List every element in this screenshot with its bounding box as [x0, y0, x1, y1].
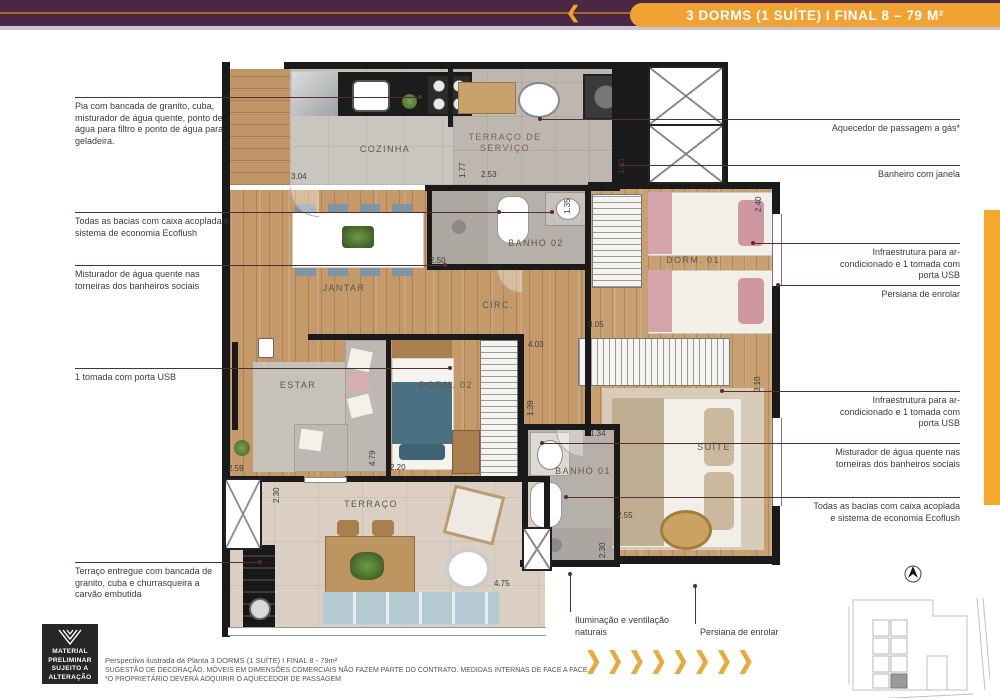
sliding-door [304, 477, 347, 483]
callout-dot [776, 283, 780, 287]
bbq-sink [249, 598, 271, 620]
dim-label: 2.20 [390, 463, 406, 472]
callout-line [75, 562, 260, 563]
dorm01-bed-runner [648, 192, 672, 254]
pagination-chevrons[interactable]: ❯❯❯❯❯❯❯❯ [585, 646, 759, 675]
sofa-pillow [299, 429, 324, 452]
room-label-dorm02: DORM. 02 [413, 380, 479, 391]
callout-line [75, 97, 420, 98]
duct-shaft [224, 478, 262, 550]
badge-line: SUJEITO A [48, 665, 91, 674]
dim-label: 2.53 [481, 170, 497, 179]
footer-disclaimer: SUGESTÃO DE DECORAÇÃO. MÓVEIS EM DIMENSÕ… [105, 666, 595, 675]
sofa-pillow [348, 373, 370, 394]
callout-line [75, 265, 445, 266]
wall [448, 69, 453, 127]
callout-ac-infra-top: Infraestrutura para ar-condicionado e 1 … [835, 247, 960, 282]
footer-disclaimer2: *O PROPRIETÁRIO DEVERÁ ADQUIRIR O AQUECE… [105, 675, 595, 684]
badge-line: PRELIMINAR [48, 657, 91, 666]
callout-bath-window: Banheiro com janela [760, 169, 960, 181]
dim-label: 2.40 [754, 196, 763, 212]
callout-mixer-right: Misturador de água quente nas torneiras … [810, 447, 960, 470]
callout-dot [497, 210, 501, 214]
room-label-terraco-servico: TERRAÇO DE SERVIÇO [465, 132, 545, 155]
callout-dot [418, 95, 422, 99]
callout-dot [568, 572, 572, 576]
callout-line [75, 212, 552, 213]
callout-sink-granite: Pia com bancada de granito, cuba, mistur… [75, 101, 225, 147]
wall [386, 338, 391, 482]
dorm01-wardrobe [592, 194, 642, 288]
callout-ecoflush-right: Todas as bacias com caixa acoplada e sis… [810, 501, 960, 524]
dim-label: 1.77 [458, 162, 467, 178]
callout-line [778, 285, 960, 286]
wall [585, 186, 591, 436]
callout-dot [564, 495, 568, 499]
dorm02-desk [452, 430, 480, 474]
room-label-circ: CIRC. [477, 300, 519, 311]
wall [614, 428, 620, 564]
dim-label: 4.79 [368, 450, 377, 466]
floorplan-page: ❮ 3 DORMS (1 SUÍTE) I FINAL 8 – 79 M² [0, 0, 1000, 700]
page-title: 3 DORMS (1 SUÍTE) I FINAL 8 – 79 M² [686, 8, 944, 23]
elevator-shaft [648, 124, 724, 184]
laundry-counter [458, 82, 516, 114]
footer-caption: Perspectiva ilustrada da Planta 3 DORMS … [105, 656, 585, 665]
callout-line [542, 443, 960, 444]
badge-line: ALTERAÇÃO [48, 674, 91, 683]
shower-drain [452, 220, 466, 234]
callout-line [753, 243, 960, 244]
callout-line [695, 586, 696, 624]
developer-logo-icon [57, 629, 83, 645]
callout-dot [538, 117, 542, 121]
callout-line [566, 497, 960, 498]
callout-line [722, 391, 960, 392]
dim-label: 2.30 [272, 487, 281, 503]
callout-dot [443, 263, 447, 267]
dim-label: 1.34 [590, 429, 606, 438]
dorm02-wardrobe [480, 340, 518, 480]
terrace-chair [337, 520, 359, 536]
dim-label: 3.10 [753, 376, 762, 392]
dorm01-bed-runner [648, 270, 672, 332]
suite-pillow [704, 408, 734, 466]
coffee-table [445, 548, 491, 590]
room-label-cozinha: COZINHA [345, 144, 425, 155]
entry-hall-floor [230, 69, 290, 185]
laundry-tank [518, 82, 560, 118]
wall [222, 62, 230, 637]
callout-usb-outlet: 1 tomada com porta USB [75, 372, 235, 384]
terrace-railing [228, 627, 546, 636]
wall [614, 556, 780, 564]
toilet [497, 196, 529, 244]
callout-gas-heater: Aquecedor de passagem a gás* [760, 123, 960, 135]
dim-label: 3.04 [291, 172, 307, 181]
callout-terrace-bbq: Terraço entregue com bancada de granito,… [75, 566, 225, 601]
dorm02-blanket [392, 382, 452, 444]
badge-line: MATERIAL [48, 648, 91, 657]
callout-dot [720, 389, 724, 393]
callout-dot [751, 241, 755, 245]
table-plant [342, 226, 374, 248]
terrace-chair [372, 520, 394, 536]
back-chevron-icon[interactable]: ❮ [566, 3, 580, 23]
room-label-banho02: BANHO 02 [505, 238, 567, 249]
room-label-jantar: JANTAR [314, 283, 374, 294]
wall [425, 185, 620, 191]
callout-line [75, 368, 450, 369]
suite-window [772, 418, 782, 506]
dim-label: 2.30 [598, 542, 607, 558]
site-plan-map [835, 558, 990, 698]
dorm02-pillow [399, 444, 445, 460]
dim-label: 4.03 [528, 340, 544, 349]
callout-line [540, 119, 960, 120]
material-preliminary-badge: MATERIAL PRELIMINAR SUJEITO A ALTERAÇÃO [42, 624, 98, 684]
callout-line [622, 165, 960, 166]
callout-mixer-left: Misturador de água quente nas torneiras … [75, 269, 235, 292]
callout-dot [448, 366, 452, 370]
wall [427, 264, 590, 270]
plant [234, 440, 250, 456]
callout-dot [620, 163, 624, 167]
elevator-shaft [648, 66, 724, 126]
callout-dot [550, 210, 554, 214]
terrace-bench [323, 592, 499, 624]
callout-dot [693, 584, 697, 588]
dim-label: 1.39 [526, 400, 535, 416]
dim-label: 4.75 [494, 579, 510, 588]
usb-outlet [258, 338, 274, 358]
dorm01-window [772, 214, 782, 286]
suite-ottoman [660, 510, 712, 550]
dorm02-headboard [392, 340, 452, 358]
kitchen-sink [352, 80, 390, 112]
right-edge-gold-tab[interactable] [984, 210, 1000, 505]
callout-natural-light: Iluminação e ventilação naturais [575, 615, 680, 638]
dim-label: 3.05 [588, 320, 604, 329]
room-label-estar: ESTAR [268, 380, 328, 391]
wall [284, 62, 616, 69]
room-label-dorm01: DORM. 01 [658, 255, 728, 266]
room-label-terraco: TERRAÇO [338, 499, 404, 510]
callout-ac-infra-suite: Infraestrutura para ar-condicionado e 1 … [835, 395, 960, 430]
plan-title-banner: 3 DORMS (1 SUÍTE) I FINAL 8 – 79 M² [630, 3, 1000, 27]
terrace-plant [350, 552, 384, 580]
tv-panel [232, 342, 238, 430]
callout-dot [540, 441, 544, 445]
suite-wardrobe [578, 338, 730, 386]
room-label-banho01: BANHO 01 [551, 466, 615, 477]
dim-label: 2.59 [228, 464, 244, 473]
wall [345, 476, 546, 482]
callout-dot [258, 560, 262, 564]
duct-shaft [522, 527, 552, 571]
highlighted-unit [891, 674, 907, 688]
fridge [292, 72, 338, 116]
dim-label: 1.35 [563, 198, 572, 214]
callout-blind-terrace: Persiana de enrolar [700, 627, 810, 639]
wall [308, 334, 522, 340]
callout-line [570, 574, 571, 612]
callout-blind-dorm01: Persiana de enrolar [760, 289, 960, 301]
dorm01-pillow [738, 278, 764, 324]
north-arrow-icon [905, 566, 921, 582]
dim-label: 2.55 [617, 511, 633, 520]
callout-ecoflush-left: Todas as bacias com caixa acoplada e sis… [75, 216, 230, 239]
